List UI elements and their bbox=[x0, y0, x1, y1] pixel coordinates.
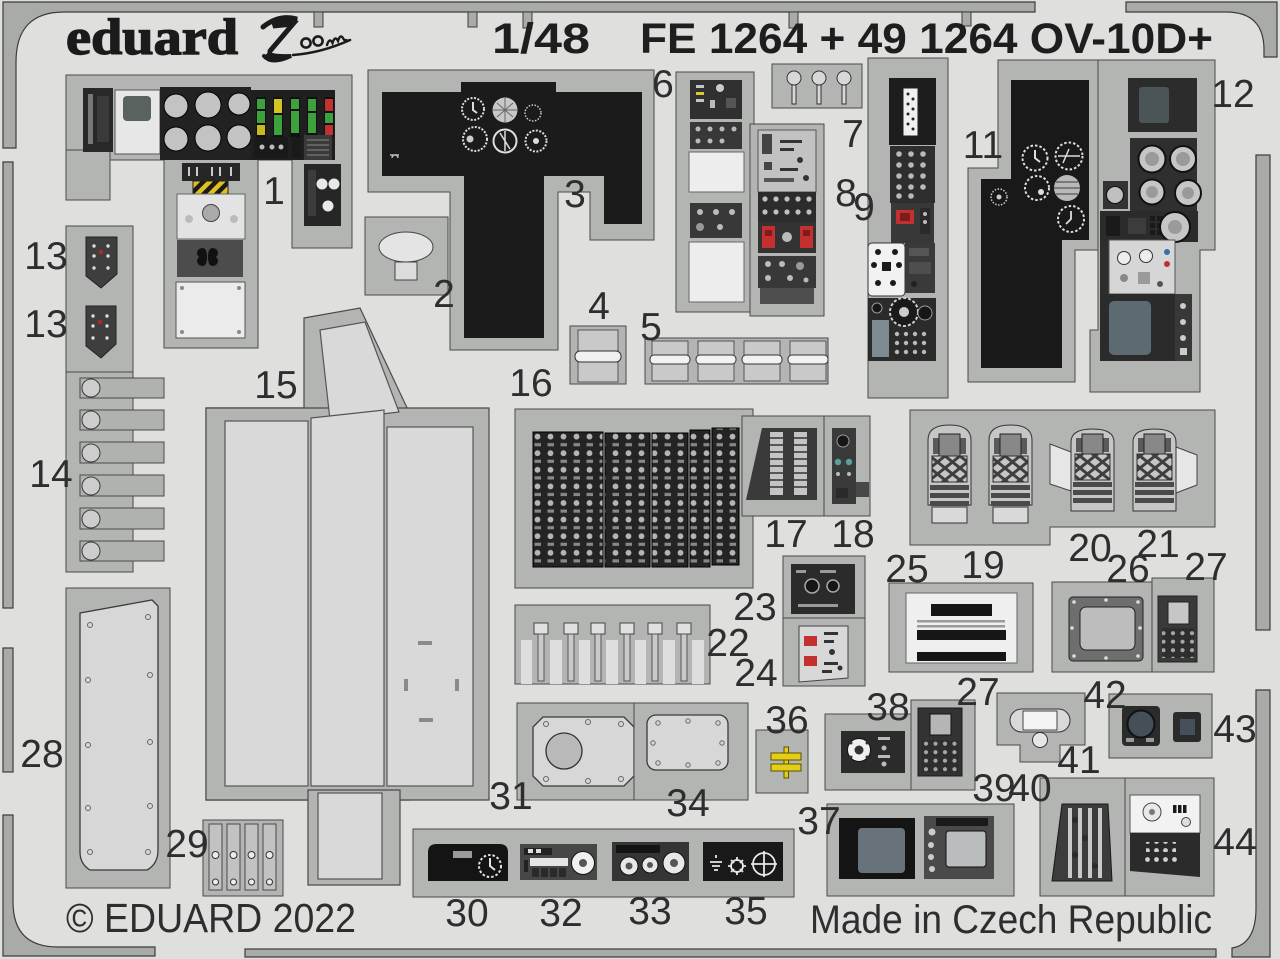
svg-text:29: 29 bbox=[165, 823, 208, 866]
svg-text:20: 20 bbox=[1068, 527, 1111, 570]
svg-text:33: 33 bbox=[628, 890, 671, 933]
svg-text:16: 16 bbox=[509, 362, 552, 405]
svg-text:25: 25 bbox=[885, 548, 928, 591]
svg-text:4: 4 bbox=[588, 285, 610, 328]
svg-text:30: 30 bbox=[445, 892, 488, 935]
svg-text:3: 3 bbox=[564, 173, 586, 216]
svg-text:28: 28 bbox=[20, 733, 63, 776]
svg-text:7: 7 bbox=[842, 113, 864, 156]
svg-text:1/48: 1/48 bbox=[492, 15, 590, 63]
svg-text:24: 24 bbox=[734, 652, 777, 695]
svg-text:17: 17 bbox=[764, 513, 807, 556]
svg-text:18: 18 bbox=[831, 513, 874, 556]
svg-text:36: 36 bbox=[765, 699, 808, 742]
svg-text:6: 6 bbox=[652, 63, 674, 106]
svg-text:27: 27 bbox=[956, 671, 999, 714]
svg-text:11: 11 bbox=[963, 124, 1004, 167]
svg-text:5: 5 bbox=[640, 306, 662, 349]
svg-text:37: 37 bbox=[797, 800, 840, 843]
svg-text:12: 12 bbox=[1211, 73, 1254, 116]
svg-text:38: 38 bbox=[866, 686, 909, 729]
svg-text:Made in Czech Republic: Made in Czech Republic bbox=[810, 898, 1212, 942]
svg-text:27: 27 bbox=[1184, 546, 1227, 589]
svg-text:9: 9 bbox=[853, 186, 875, 229]
svg-text:42: 42 bbox=[1083, 674, 1126, 717]
svg-text:13: 13 bbox=[24, 303, 67, 346]
svg-text:32: 32 bbox=[539, 892, 582, 935]
svg-text:© EDUARD 2022: © EDUARD 2022 bbox=[66, 895, 356, 941]
svg-text:15: 15 bbox=[254, 364, 297, 407]
svg-text:19: 19 bbox=[961, 544, 1004, 587]
svg-text:41: 41 bbox=[1057, 739, 1100, 782]
svg-text:35: 35 bbox=[724, 890, 767, 933]
svg-text:23: 23 bbox=[733, 586, 776, 629]
svg-text:31: 31 bbox=[489, 775, 532, 818]
svg-text:14: 14 bbox=[29, 453, 72, 496]
svg-text:34: 34 bbox=[666, 782, 709, 825]
svg-text:eduard: eduard bbox=[66, 10, 238, 66]
svg-text:2: 2 bbox=[433, 273, 455, 316]
svg-text:FE 1264 + 49 1264 OV-10D+: FE 1264 + 49 1264 OV-10D+ bbox=[640, 15, 1213, 63]
svg-text:13: 13 bbox=[24, 235, 67, 278]
svg-text:1: 1 bbox=[263, 170, 285, 213]
svg-text:40: 40 bbox=[1008, 767, 1051, 810]
svg-text:26: 26 bbox=[1106, 548, 1149, 591]
svg-text:44: 44 bbox=[1213, 821, 1256, 864]
svg-text:43: 43 bbox=[1213, 708, 1256, 751]
